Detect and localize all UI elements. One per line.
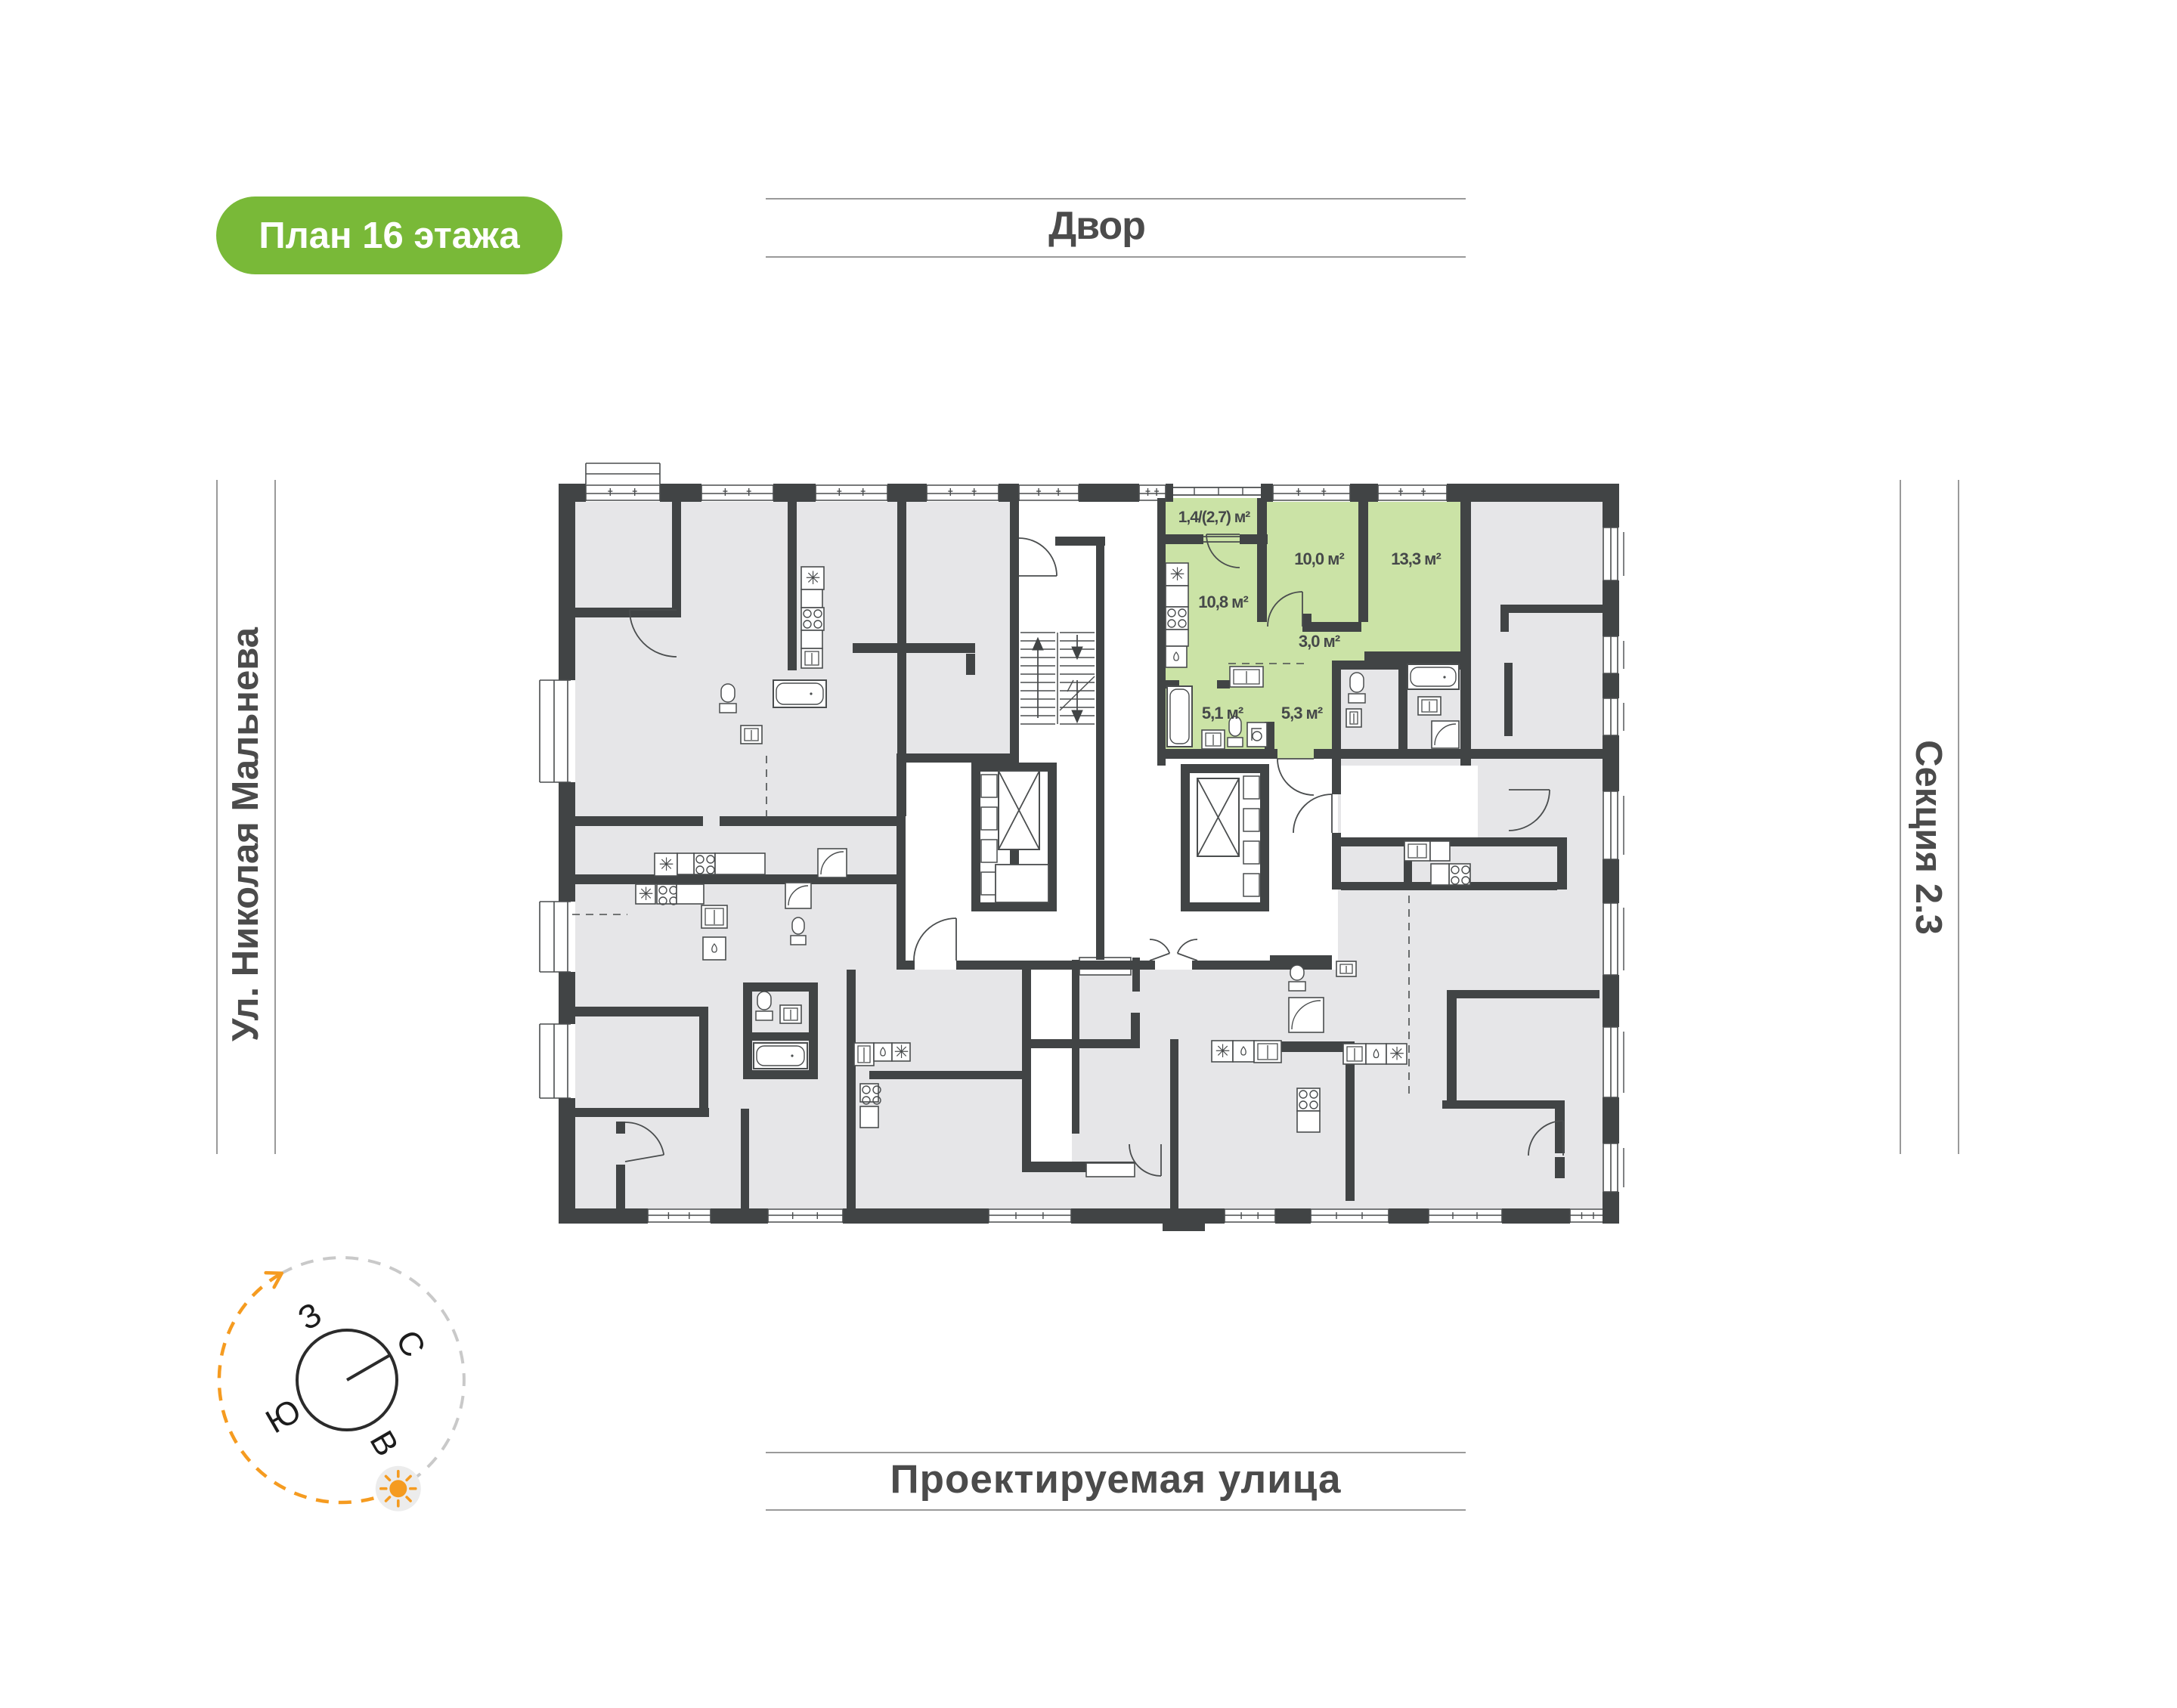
svg-text:10,0 м²: 10,0 м² (1294, 549, 1344, 568)
svg-text:3,0 м²: 3,0 м² (1299, 632, 1340, 651)
svg-text:З: З (292, 1295, 328, 1338)
svg-text:10,8 м²: 10,8 м² (1198, 593, 1248, 611)
svg-text:✳: ✳ (893, 1042, 908, 1063)
svg-text:✳: ✳ (1215, 1041, 1229, 1062)
svg-text:5,3 м²: 5,3 м² (1281, 704, 1323, 722)
svg-text:✳: ✳ (1169, 565, 1184, 585)
svg-text:13,3 м²: 13,3 м² (1391, 549, 1441, 568)
svg-text:В: В (362, 1425, 405, 1462)
svg-text:✳: ✳ (658, 855, 673, 875)
svg-text:✳: ✳ (1389, 1044, 1404, 1065)
svg-text:С: С (389, 1324, 432, 1363)
svg-text:5,1 м²: 5,1 м² (1202, 704, 1243, 722)
svg-text:1,4/(2,7) м²: 1,4/(2,7) м² (1178, 509, 1251, 526)
svg-text:✳: ✳ (805, 568, 819, 589)
svg-text:✳: ✳ (638, 884, 652, 905)
